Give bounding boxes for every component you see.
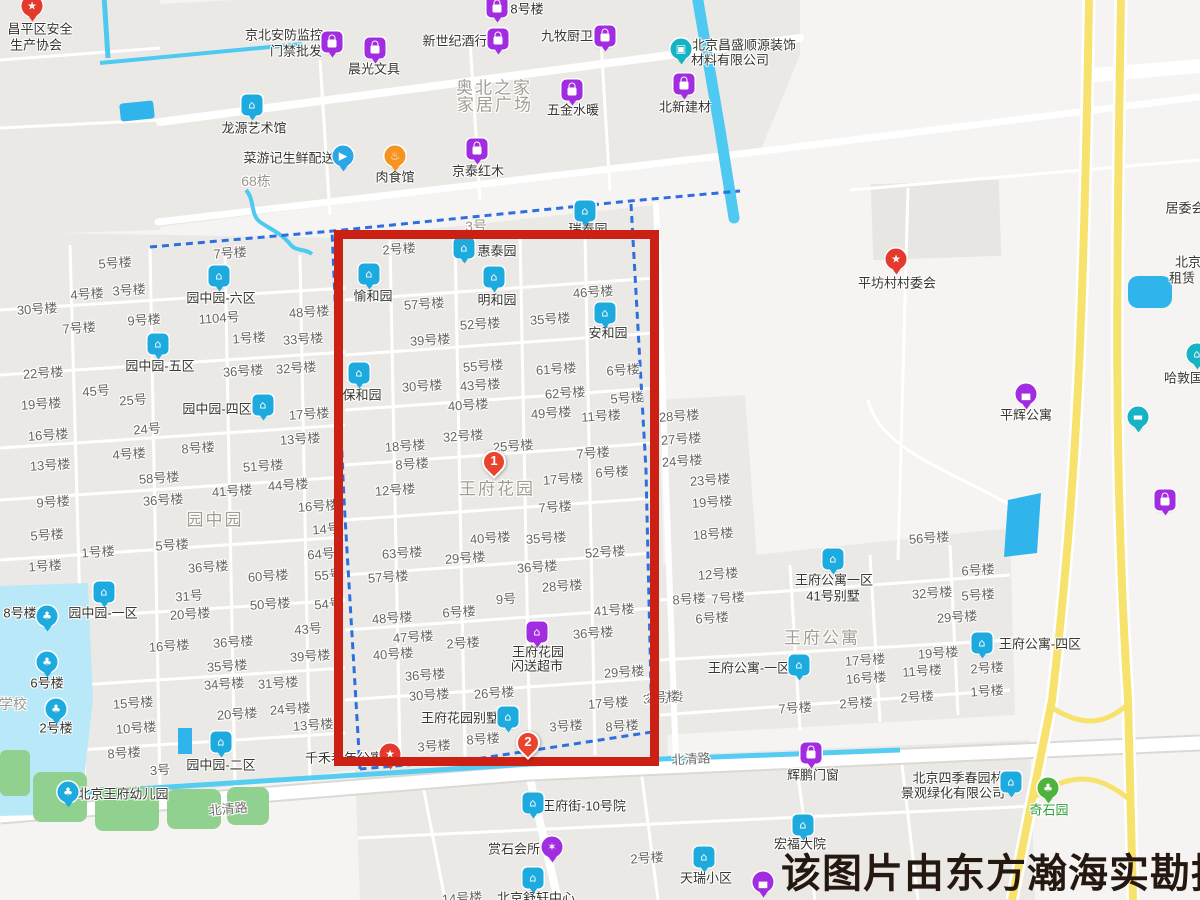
map-label: 20号楼	[216, 702, 258, 724]
map-label: 32号楼	[275, 356, 317, 378]
community-building-icon[interactable]: ⌂	[694, 847, 715, 868]
shop-bag-icon[interactable]	[488, 29, 509, 50]
map-label: 王府公寓	[784, 624, 860, 649]
map-label: 43号	[294, 618, 323, 639]
map-label: 2号楼	[630, 846, 664, 867]
community-building-icon[interactable]: ⌂	[972, 633, 993, 654]
map-label: 王府公寓-四区	[999, 634, 1081, 653]
shop-bag-icon[interactable]	[487, 0, 508, 18]
map-label: 51号楼	[242, 454, 284, 476]
map-label: 36号楼	[212, 630, 254, 652]
map-label: 学校	[0, 694, 27, 714]
tree-icon[interactable]: ♣	[46, 699, 67, 720]
map-label: 8号楼	[672, 587, 706, 608]
community-building-icon[interactable]: ⌂	[523, 868, 544, 889]
delivery-truck-icon[interactable]: ▶	[333, 146, 354, 167]
numbered-pin-2[interactable]: 2	[515, 730, 541, 762]
map-label: 23号楼	[689, 468, 731, 490]
company-briefcase-icon[interactable]: ▣	[671, 39, 692, 60]
map-label: 8号楼	[107, 741, 141, 762]
map-label: 31号楼	[257, 671, 299, 693]
map-label: 家居广场	[457, 91, 533, 116]
map-label: 29号楼	[936, 605, 978, 627]
building-icon[interactable]: ⌂	[1187, 344, 1200, 365]
map-label: 2号楼	[900, 685, 934, 706]
map-label: 18号楼	[692, 522, 734, 544]
tree-icon[interactable]: ♣	[37, 652, 58, 673]
map-label: 56号楼	[908, 526, 950, 548]
community-building-icon[interactable]: ⌂	[823, 549, 844, 570]
map-label: 8号楼	[3, 603, 36, 622]
shop-bag-icon[interactable]	[467, 139, 488, 160]
map-label: 租赁	[1169, 268, 1195, 287]
map-label: 园中园-四区	[182, 399, 251, 418]
map-label: 13号楼	[279, 427, 321, 449]
map-label: 5号楼	[30, 523, 64, 544]
park-tree-icon[interactable]: ♣	[1038, 778, 1059, 799]
shop-bag-icon[interactable]	[365, 38, 386, 59]
map-label: 赏石会所	[488, 839, 540, 858]
map-label: 王府公寓-一区	[708, 658, 790, 677]
government-star-icon[interactable]: ★	[886, 249, 907, 270]
club-art-icon[interactable]: ✶	[542, 837, 563, 858]
community-building-icon[interactable]: ⌂	[789, 655, 810, 676]
shop-bag-icon[interactable]	[562, 80, 583, 101]
map-label: 12号楼	[697, 562, 739, 584]
bus-stop-icon[interactable]: ▬	[1128, 407, 1149, 428]
shop-bag-icon[interactable]	[1155, 490, 1176, 511]
tree-icon[interactable]: ♣	[37, 606, 58, 627]
map-label: 14号楼	[441, 886, 483, 900]
shop-bag-icon[interactable]	[595, 26, 616, 47]
map-label: 3号	[149, 759, 171, 779]
map-label: 5号楼	[98, 251, 132, 272]
community-building-icon[interactable]: ⌂	[211, 732, 232, 753]
map-label: 1号楼	[28, 554, 62, 575]
numbered-pin-1[interactable]: 1	[481, 449, 507, 481]
map-label: 64号	[307, 543, 336, 564]
map-label: 1号楼	[232, 326, 266, 347]
map-label: 5号楼	[155, 533, 189, 554]
map-label: 北清路	[208, 797, 249, 819]
map-label: 20号楼	[169, 602, 211, 624]
map-label: 园中园	[187, 506, 244, 531]
map-label: 门禁批发	[270, 41, 322, 60]
map-label: 生产协会	[10, 35, 62, 54]
map-label: 28号楼	[658, 404, 700, 426]
watermark-text: 该图片由东方瀚海实勘拍摄	[781, 841, 1200, 899]
map-label: 九牧厨卫	[541, 26, 593, 45]
community-building-icon[interactable]: ⌂	[523, 793, 544, 814]
map-label: 6号楼	[695, 606, 729, 627]
map-label: 1号楼	[970, 679, 1004, 700]
map-label: 6号楼	[961, 558, 995, 579]
shop-bag-icon[interactable]	[801, 743, 822, 764]
map-label: 36号楼	[142, 488, 184, 510]
map-label: 39号楼	[289, 644, 331, 666]
hotel-bed-icon[interactable]: ▄	[753, 872, 774, 893]
map-label: 32号楼	[911, 581, 953, 603]
map-label: 19号楼	[691, 490, 733, 512]
map-label: 41号楼	[211, 479, 253, 501]
map-label: 1号楼	[81, 540, 115, 561]
map-label: 19号楼	[20, 392, 62, 414]
restaurant-icon[interactable]: ♨	[385, 146, 406, 167]
map-label: 7号楼	[711, 586, 745, 607]
map-label: 7号楼	[778, 696, 812, 717]
map-label: 8号楼	[181, 436, 215, 457]
map-label: 30号楼	[16, 297, 58, 319]
map-label: 48号楼	[288, 300, 330, 322]
kindergarten-tree-icon[interactable]: ♣	[58, 782, 79, 803]
map-label: 24号楼	[661, 449, 703, 471]
map-label: 45号	[82, 380, 111, 401]
map-label: 16号楼	[27, 423, 69, 445]
map-label: 58号楼	[138, 466, 180, 488]
map-label: 11号楼	[902, 659, 943, 681]
map-label: 15号楼	[112, 691, 154, 713]
map-label: 4号楼	[112, 442, 146, 463]
map-viewport[interactable]: 昌平区安全生产协会京北安防监控门禁批发晨光文具新世纪酒行8号楼九牧厨卫北京昌盛顺…	[0, 0, 1200, 900]
map-label: 16号楼	[845, 666, 887, 688]
highlight-rectangle	[334, 230, 659, 766]
map-label: 60号楼	[247, 564, 289, 586]
map-label: 25号	[119, 389, 148, 410]
shop-bag-icon[interactable]	[674, 74, 695, 95]
map-label: 北京王府幼儿园	[77, 784, 168, 803]
hotel-bed-icon[interactable]: ▄	[1016, 384, 1037, 405]
map-label: 17号楼	[288, 402, 330, 424]
map-label: 8号楼	[510, 0, 543, 18]
map-label: 2号楼	[839, 691, 873, 712]
map-label: 22号楼	[22, 361, 64, 383]
map-label: 68栋	[241, 171, 271, 191]
map-label: 36号楼	[187, 555, 229, 577]
map-label: 居委会	[1165, 198, 1200, 217]
map-label: 41号别墅	[806, 586, 859, 605]
community-building-icon[interactable]: ⌂	[242, 95, 263, 116]
map-label: 4号楼	[70, 282, 104, 303]
map-label: 材料有限公司	[691, 50, 769, 69]
community-building-icon[interactable]: ⌂	[1001, 772, 1022, 793]
map-label: 1104号	[198, 306, 240, 328]
community-building-icon[interactable]: ⌂	[253, 395, 274, 416]
map-label: 24号	[133, 418, 162, 439]
map-label: 16号楼	[297, 494, 339, 516]
map-label: 7号楼	[62, 316, 96, 337]
map-label: 9号楼	[127, 308, 161, 329]
map-label: 36号楼	[222, 359, 264, 381]
community-building-icon[interactable]: ⌂	[793, 815, 814, 836]
map-label: 27号楼	[660, 427, 702, 449]
community-building-icon[interactable]: ⌂	[209, 266, 230, 287]
map-label: 16号楼	[148, 634, 190, 656]
map-label: 34号楼	[203, 672, 245, 694]
map-label: 王府街-10号院	[542, 796, 626, 815]
map-label: 2号楼	[970, 656, 1004, 677]
map-label: 景观绿化有限公司	[901, 783, 1005, 802]
community-building-icon[interactable]: ⌂	[575, 201, 596, 222]
map-label: 5号楼	[961, 583, 995, 604]
map-label: 13号楼	[29, 453, 71, 475]
map-label: 7号楼	[213, 241, 247, 262]
map-label: 44号楼	[267, 473, 309, 495]
shop-bag-icon[interactable]	[322, 32, 343, 53]
community-building-icon[interactable]: ⌂	[94, 582, 115, 603]
map-label: 33号楼	[282, 327, 324, 349]
map-label: 北清路	[671, 747, 711, 768]
map-label: 9号楼	[36, 490, 70, 511]
map-label: 3号楼	[112, 278, 146, 299]
map-label: 13号楼	[292, 713, 334, 735]
map-label: 10号楼	[115, 716, 157, 738]
map-label: 新世纪酒行	[422, 31, 487, 50]
community-building-icon[interactable]: ⌂	[148, 334, 169, 355]
map-label: 50号楼	[249, 592, 291, 614]
map-label: 菜游记生鲜配送	[243, 148, 334, 167]
